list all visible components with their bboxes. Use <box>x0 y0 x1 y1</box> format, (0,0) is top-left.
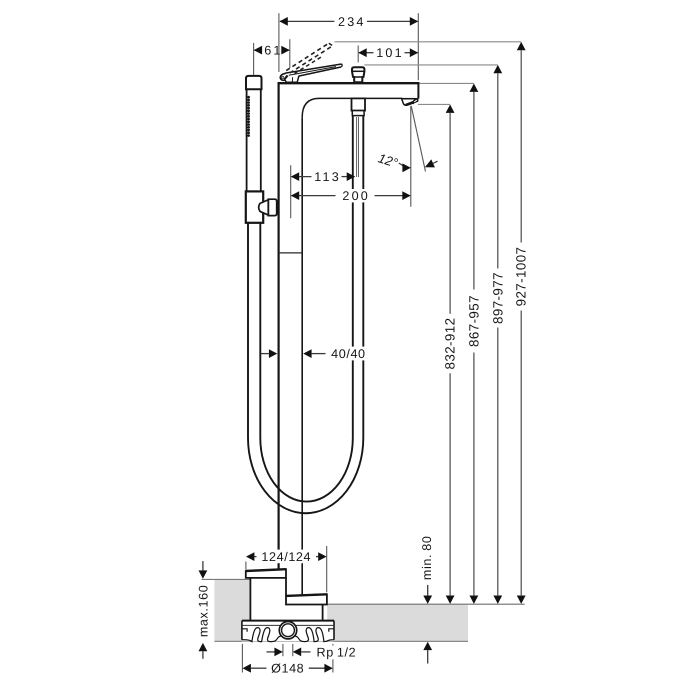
svg-text:min. 80: min. 80 <box>420 536 434 581</box>
svg-text:234: 234 <box>338 15 366 29</box>
svg-text:Ø148: Ø148 <box>271 662 304 676</box>
svg-text:832-912: 832-912 <box>443 318 458 370</box>
svg-text:124/124: 124/124 <box>261 550 311 564</box>
svg-text:113: 113 <box>314 170 341 184</box>
svg-text:Rp 1/2: Rp 1/2 <box>317 645 357 659</box>
svg-text:927-1007: 927-1007 <box>514 247 529 307</box>
svg-text:897-977: 897-977 <box>490 272 505 324</box>
svg-text:max.160: max.160 <box>196 585 210 638</box>
svg-text:867-957: 867-957 <box>466 295 481 347</box>
svg-text:61: 61 <box>264 44 282 58</box>
svg-text:40/40: 40/40 <box>331 347 366 361</box>
svg-text:200: 200 <box>342 189 370 203</box>
svg-text:101: 101 <box>376 46 404 60</box>
